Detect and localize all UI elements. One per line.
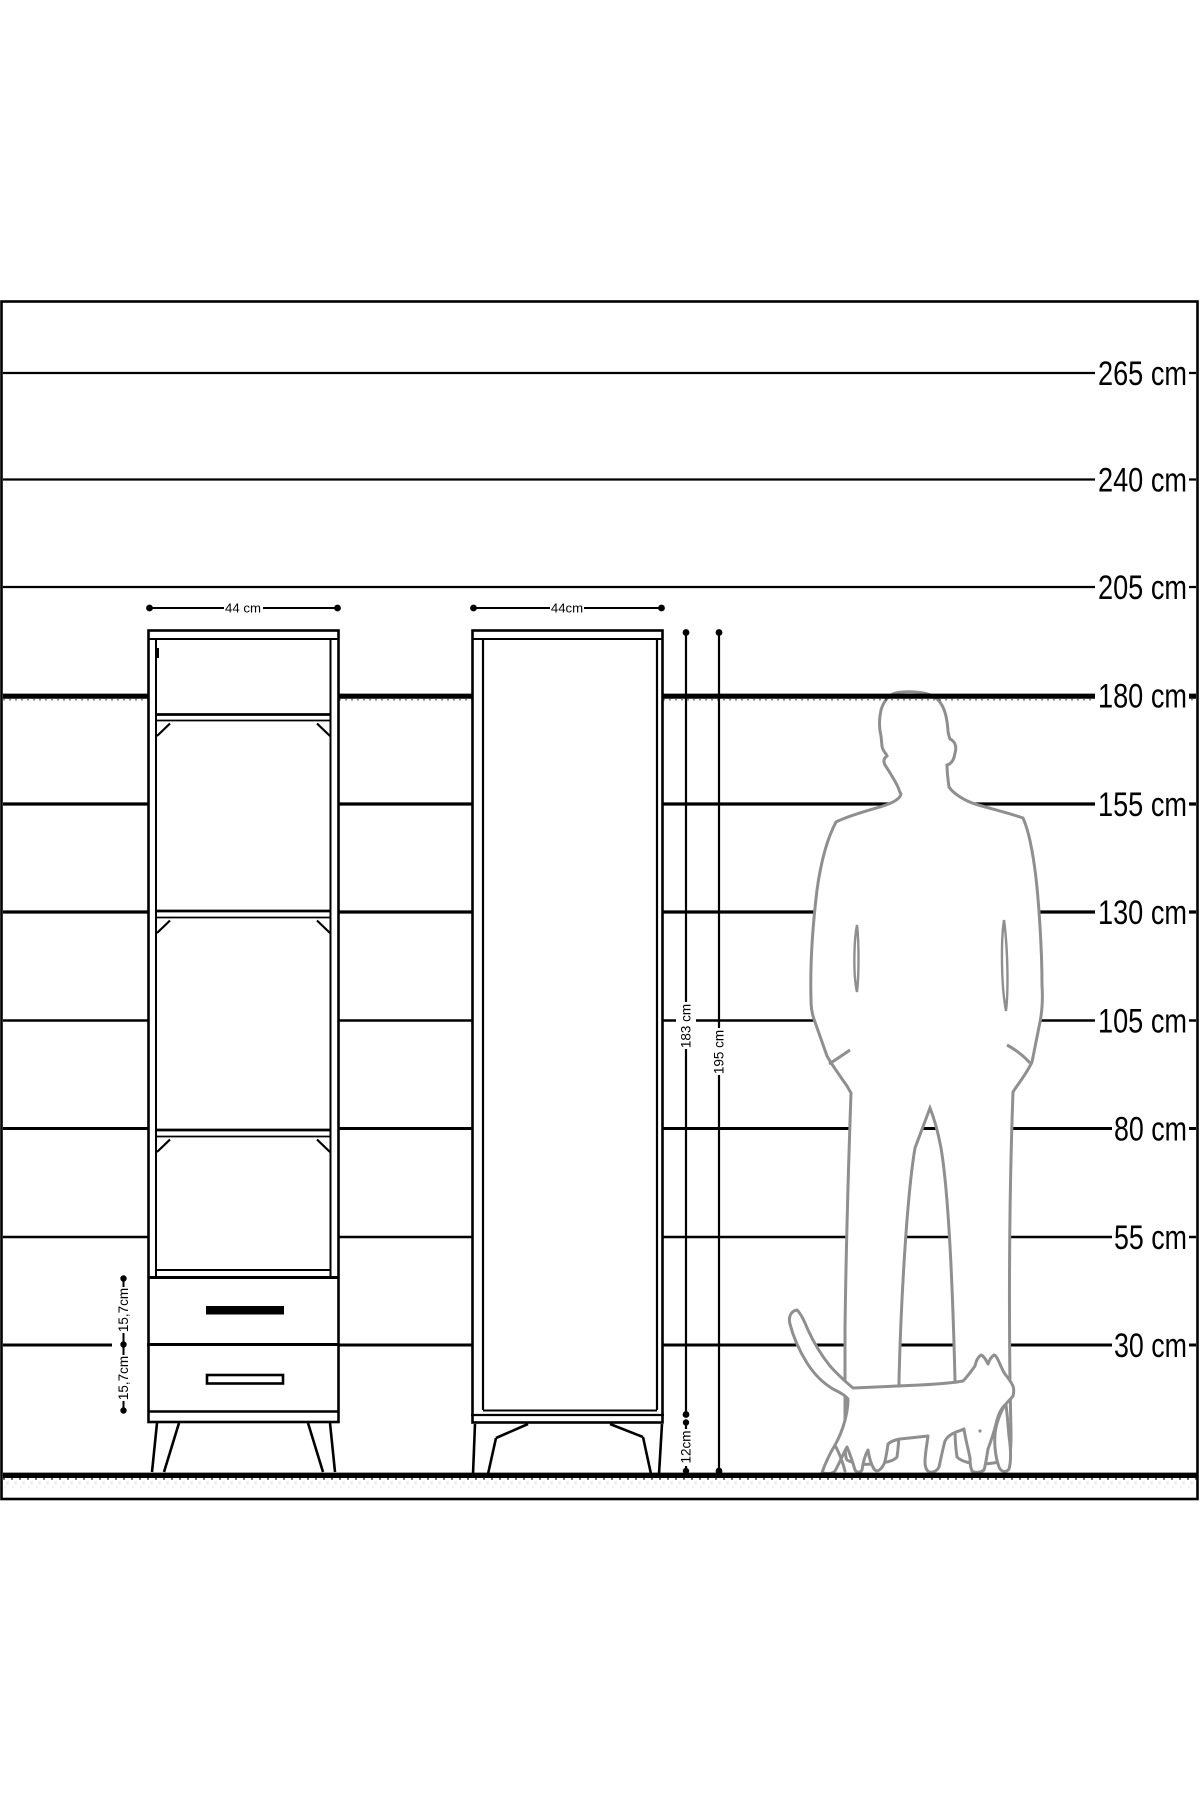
svg-text:155 cm: 155 cm — [1098, 786, 1187, 824]
svg-text:130 cm: 130 cm — [1098, 894, 1187, 932]
svg-text:105 cm: 105 cm — [1098, 1003, 1187, 1041]
svg-text:180 cm: 180 cm — [1098, 678, 1187, 716]
svg-text:44cm: 44cm — [551, 601, 583, 616]
svg-text:265 cm: 265 cm — [1098, 355, 1187, 393]
svg-text:205 cm: 205 cm — [1098, 569, 1187, 607]
svg-text:15,7cm: 15,7cm — [116, 1288, 131, 1332]
svg-text:80 cm: 80 cm — [1114, 1111, 1187, 1149]
svg-text:183 cm: 183 cm — [679, 1004, 694, 1048]
svg-text:30 cm: 30 cm — [1114, 1327, 1187, 1365]
svg-text:44 cm: 44 cm — [225, 601, 261, 616]
svg-text:15,7cm: 15,7cm — [116, 1356, 131, 1400]
svg-text:12cm: 12cm — [679, 1430, 694, 1463]
svg-text:195 cm: 195 cm — [712, 1030, 727, 1074]
svg-text:55 cm: 55 cm — [1114, 1219, 1187, 1257]
svg-text:240 cm: 240 cm — [1098, 462, 1187, 500]
